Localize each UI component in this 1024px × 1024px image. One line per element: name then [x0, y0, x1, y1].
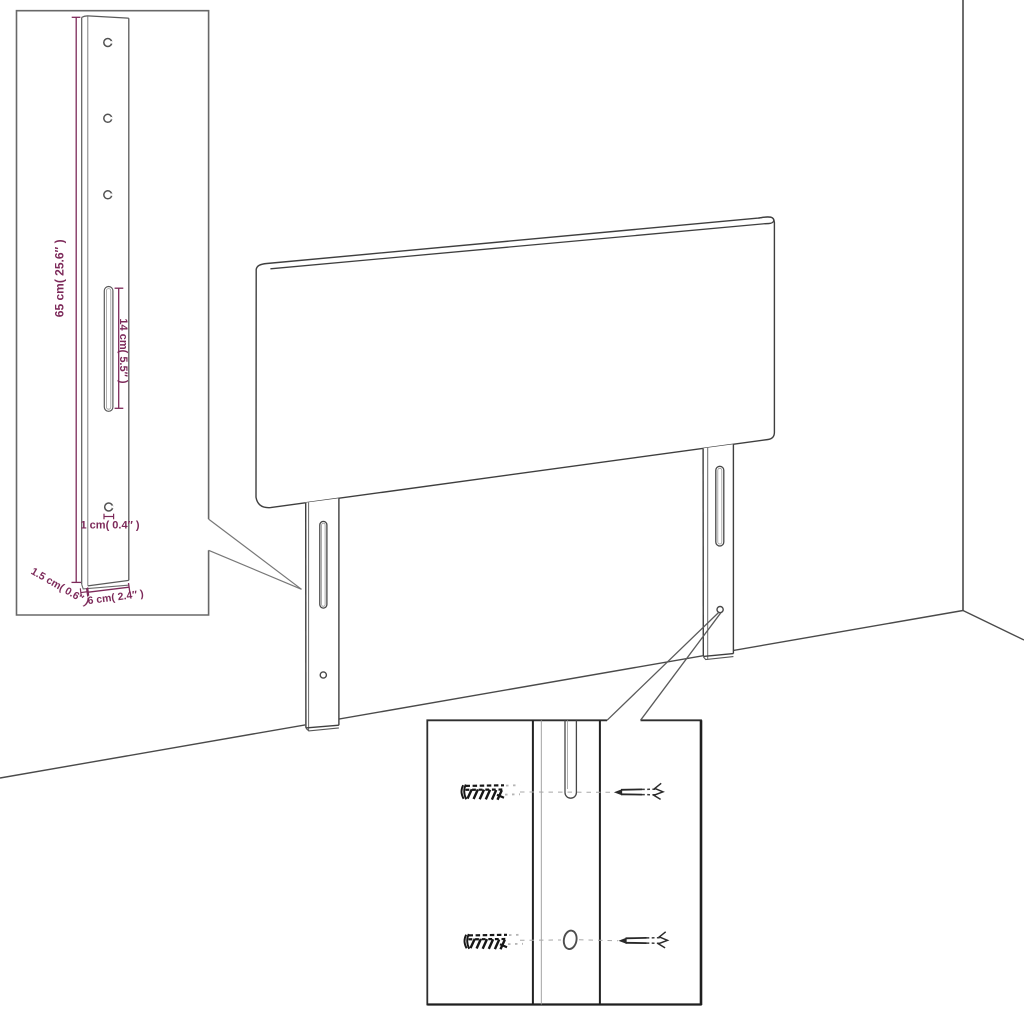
svg-text:65 cm( 25.6″ ): 65 cm( 25.6″ ): [52, 239, 66, 317]
svg-text:1 cm( 0.4″ ): 1 cm( 0.4″ ): [81, 520, 140, 532]
svg-text:14 cm( 5.5″ ): 14 cm( 5.5″ ): [117, 318, 129, 384]
